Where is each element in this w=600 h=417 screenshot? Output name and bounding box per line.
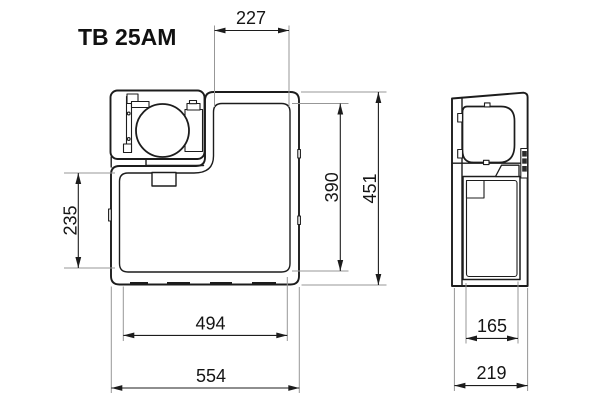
relay-box-terminal — [190, 101, 197, 104]
dim-label-165: 165 — [477, 316, 507, 336]
side-bracket-upper — [458, 114, 463, 123]
side-bracket-lower — [458, 150, 463, 159]
bracket-screw-lower — [127, 138, 130, 141]
compressor-bottom-nub — [484, 160, 490, 164]
dimension-inner-width: 494 — [123, 277, 287, 341]
bracket-bar — [132, 102, 150, 108]
left-edge-nub — [109, 209, 112, 221]
dim-label-494: 494 — [195, 314, 225, 334]
hinge-block-3 — [522, 166, 527, 172]
dim-label-554: 554 — [196, 366, 226, 386]
dimension-lower-front-height: 235 — [61, 173, 116, 268]
right-edge-nub-lower — [298, 216, 301, 225]
hinge-block-1 — [522, 151, 527, 157]
side-view — [452, 93, 528, 286]
dimension-door-width: 165 — [466, 282, 518, 344]
dimension-overall-height: 451 — [301, 92, 387, 285]
side-compressor-silhouette — [463, 107, 515, 163]
dim-label-219: 219 — [476, 363, 506, 383]
dimension-overall-depth: 219 — [454, 288, 527, 391]
dimension-inner-height: 390 — [292, 104, 349, 272]
model-title: TB 25AM — [78, 24, 176, 50]
bracket-screw-upper — [127, 112, 130, 115]
front-view — [109, 91, 301, 285]
relay-box-cap — [187, 104, 200, 111]
compressor-top-nub — [485, 103, 491, 107]
bracket-bottom-block — [124, 144, 132, 153]
compressor-circle — [136, 104, 189, 157]
side-door-vent-square — [467, 181, 485, 199]
technical-drawing: 227 235 390 451 494 554 — [0, 0, 600, 417]
dimension-overall-width: 554 — [111, 287, 299, 394]
dim-label-451: 451 — [360, 173, 380, 203]
compartment-floor-step — [146, 159, 204, 166]
dim-label-227: 227 — [236, 8, 266, 28]
right-edge-nub-upper — [298, 150, 301, 159]
drain-block — [152, 173, 176, 187]
hinge-block-2 — [522, 158, 527, 163]
dim-label-390: 390 — [322, 172, 342, 202]
dim-label-235: 235 — [61, 205, 81, 235]
drawing-canvas: 227 235 390 451 494 554 — [0, 0, 600, 417]
